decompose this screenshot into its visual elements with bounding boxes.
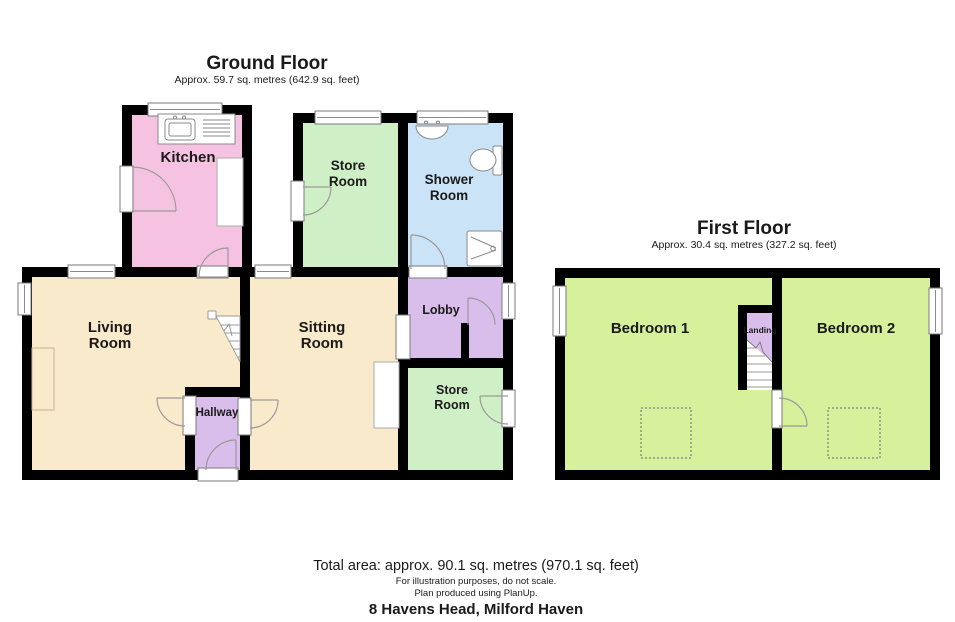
floorplan-canvas: Ground Floor Approx. 59.7 sq. metres (64… <box>0 0 955 622</box>
kitchen-label: Kitchen <box>160 149 215 166</box>
store-room-2-label: Store <box>436 383 468 397</box>
sitting-room-label: Sitting <box>299 319 346 336</box>
bedroom-2-window <box>929 288 942 334</box>
hallway-floor <box>190 392 245 475</box>
living-room-top-window <box>68 265 115 278</box>
living-room-label: Living <box>88 319 132 336</box>
footer: Total area: approx. 90.1 sq. metres (970… <box>313 558 639 618</box>
tap-icon <box>437 121 440 124</box>
kitchen-counter <box>217 158 243 226</box>
sitting-room-recess <box>374 362 399 428</box>
first-floor-title: First Floor <box>697 218 792 239</box>
sitting-room-label: Room <box>301 335 344 352</box>
store-room-1-door-opening <box>291 181 304 221</box>
first-floor-subtitle: Approx. 30.4 sq. metres (327.2 sq. feet) <box>651 239 836 251</box>
ground-floor-plan: Ground Floor Approx. 59.7 sq. metres (64… <box>18 53 515 481</box>
sitting-lobby-opening <box>396 315 410 359</box>
store-room-2-label: Room <box>434 398 469 412</box>
first-floor-plan: First Floor Approx. 30.4 sq. metres (327… <box>553 218 942 480</box>
ground-floor-subtitle: Approx. 59.7 sq. metres (642.9 sq. feet) <box>174 74 359 86</box>
bedroom-2-label: Bedroom 2 <box>817 320 895 337</box>
landing-door-opening <box>772 390 782 428</box>
store-room-1-label: Room <box>329 174 367 189</box>
front-door-opening <box>198 468 238 481</box>
hallway-living-door-opening <box>183 396 196 435</box>
bedroom-1-window <box>553 286 566 336</box>
store-room-1-label: Store <box>331 158 366 173</box>
shower-lobby-door-opening <box>409 266 447 278</box>
shower-room-label: Room <box>430 188 468 203</box>
total-area-text: Total area: approx. 90.1 sq. metres (970… <box>313 558 639 574</box>
disclaimer-text: For illustration purposes, do not scale. <box>396 576 557 587</box>
hallway-sitting-door-opening <box>238 398 251 435</box>
shower-tray <box>467 231 502 266</box>
property-address: 8 Havens Head, Milford Haven <box>369 601 583 618</box>
shower-room-label: Shower <box>425 172 475 187</box>
tap-icon <box>174 116 177 119</box>
sitting-room-window <box>255 265 291 278</box>
store-room-1-floor <box>298 118 403 277</box>
lobby-entrance-frame <box>502 283 515 319</box>
living-room-label: Room <box>89 335 132 352</box>
produced-with-text: Plan produced using PlanUp. <box>414 588 537 599</box>
landing-label: Landing <box>743 325 776 335</box>
hallway-label: Hallway <box>196 407 239 419</box>
tap-icon <box>183 116 186 119</box>
store-room-1-window <box>315 111 381 124</box>
kitchen-side-door-opening <box>120 166 133 212</box>
tap-icon <box>425 121 428 124</box>
newel-post <box>208 311 216 319</box>
bedroom-2-floor <box>777 273 935 475</box>
ground-floor-title: Ground Floor <box>206 53 328 74</box>
lobby-floor <box>403 272 508 363</box>
kitchen-living-door-opening <box>197 266 228 278</box>
bedroom-1-label: Bedroom 1 <box>611 320 689 337</box>
lobby-label: Lobby <box>422 303 460 317</box>
ground-floor-rooms <box>27 110 508 475</box>
living-room-side-window <box>18 283 31 315</box>
kitchen-sink-unit <box>158 114 235 144</box>
